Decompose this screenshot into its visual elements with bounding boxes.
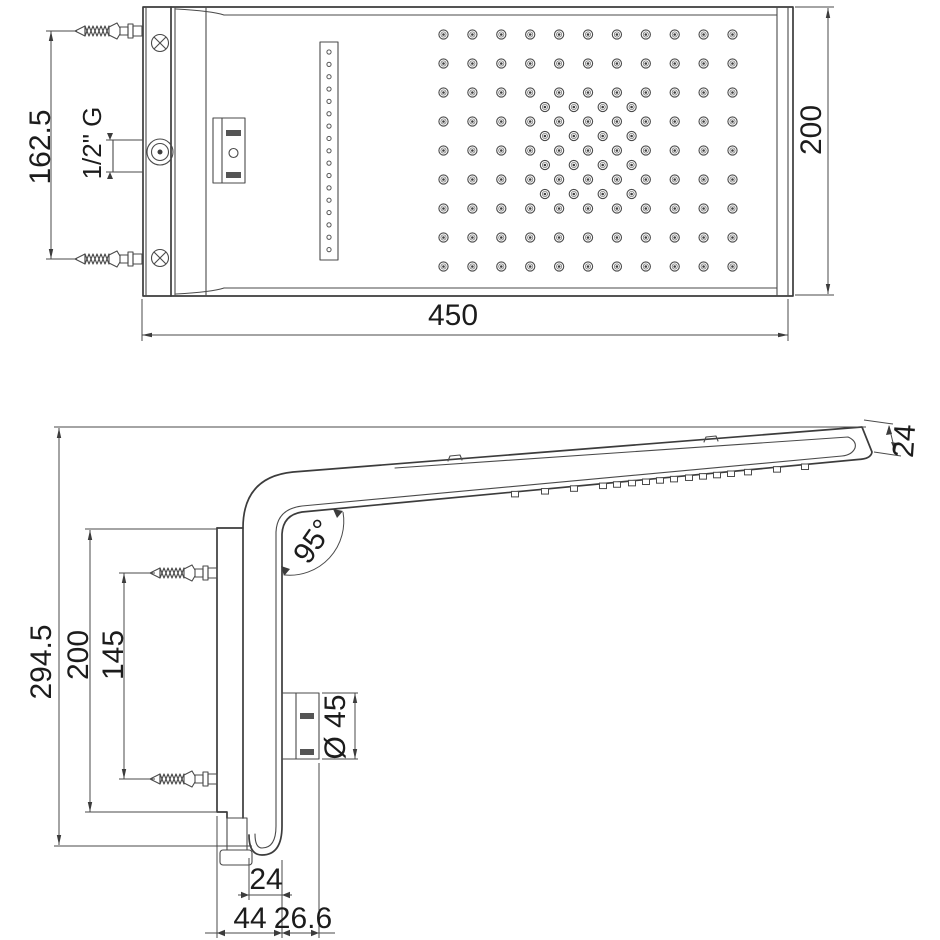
wall-anchor-icon (150, 771, 217, 787)
dim-label-anchor-spacing: 162.5 (26, 109, 56, 184)
spout-foot-pad (220, 850, 252, 865)
wall-anchor-icon (150, 565, 217, 581)
dim-label-plate-height: 200 (64, 630, 94, 680)
dim-label-escutcheon-offset: 26.6 (274, 904, 332, 934)
head-inner-profile (255, 437, 855, 848)
wall-anchor-icon (75, 251, 142, 267)
pipe-stub (106, 133, 143, 179)
wall-plate-profile (217, 528, 243, 818)
dim-label-anchor-spacing-side: 145 (99, 630, 129, 680)
dim-label-height: 200 (797, 105, 827, 155)
face-end-curves (176, 9, 224, 294)
top-view (46, 7, 834, 341)
dim-label-head-thickness: 24 (889, 423, 921, 458)
wall-anchor-icon (75, 23, 142, 39)
dim-label-spout-width: 24 (249, 865, 282, 895)
dim-label-total-height: 294.5 (27, 624, 57, 699)
escutcheon (282, 693, 319, 759)
mounting-bracket (213, 118, 245, 183)
technical-drawing-canvas: 450 200 162.5 1/2" G 294.5 200 145 95° 2… (0, 0, 940, 940)
dim-label-width: 450 (428, 301, 478, 331)
side-view (54, 420, 901, 938)
dim-label-escutcheon: Ø 45 (321, 694, 351, 759)
dim-label-plate-depth: 44 (233, 904, 266, 934)
nozzle-grid (439, 30, 737, 271)
slot-holes (327, 50, 331, 252)
spout-foot (227, 818, 247, 850)
screw-icon (152, 250, 169, 267)
inlet-fitting-icon (147, 139, 173, 165)
dim-label-thread: 1/2" G (79, 107, 105, 180)
screw-icon (152, 35, 169, 52)
